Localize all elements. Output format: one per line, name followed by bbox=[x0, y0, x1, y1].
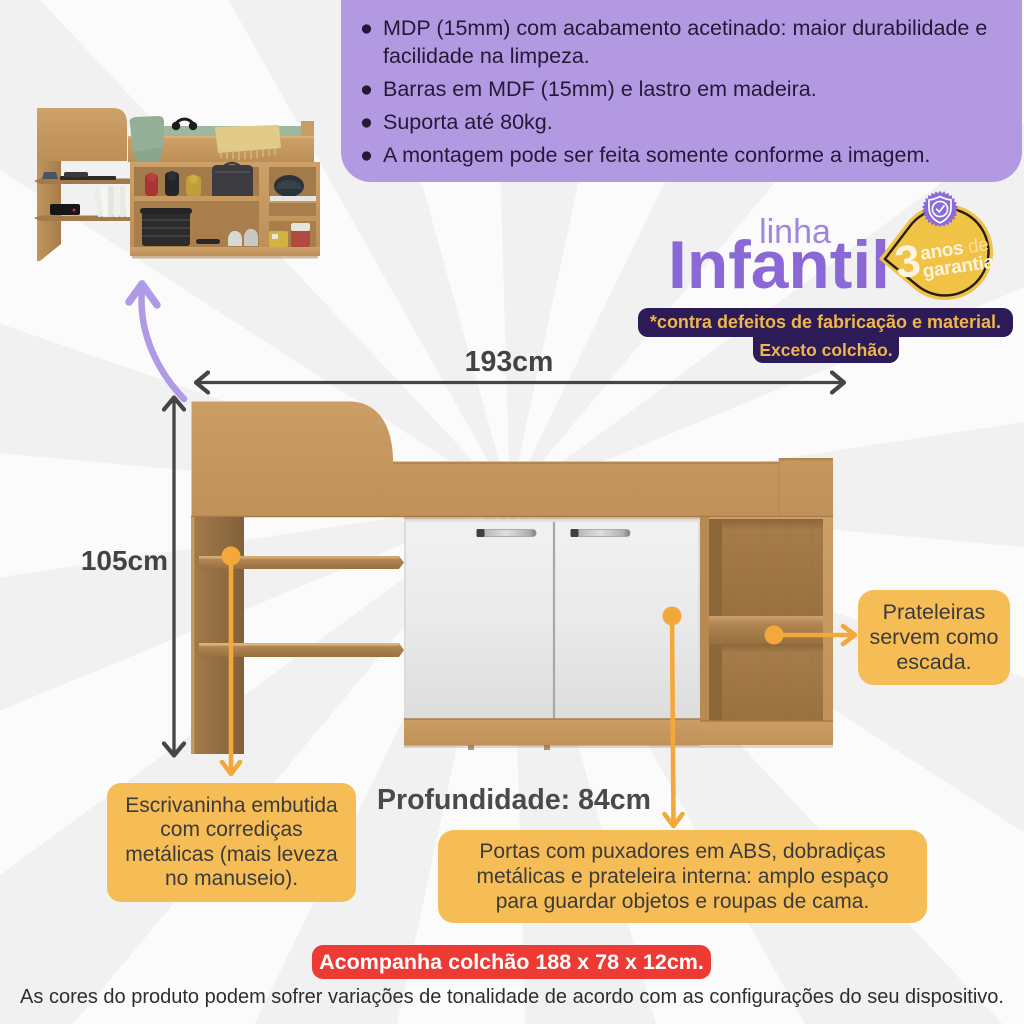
svg-text:Infantil: Infantil bbox=[668, 227, 890, 303]
